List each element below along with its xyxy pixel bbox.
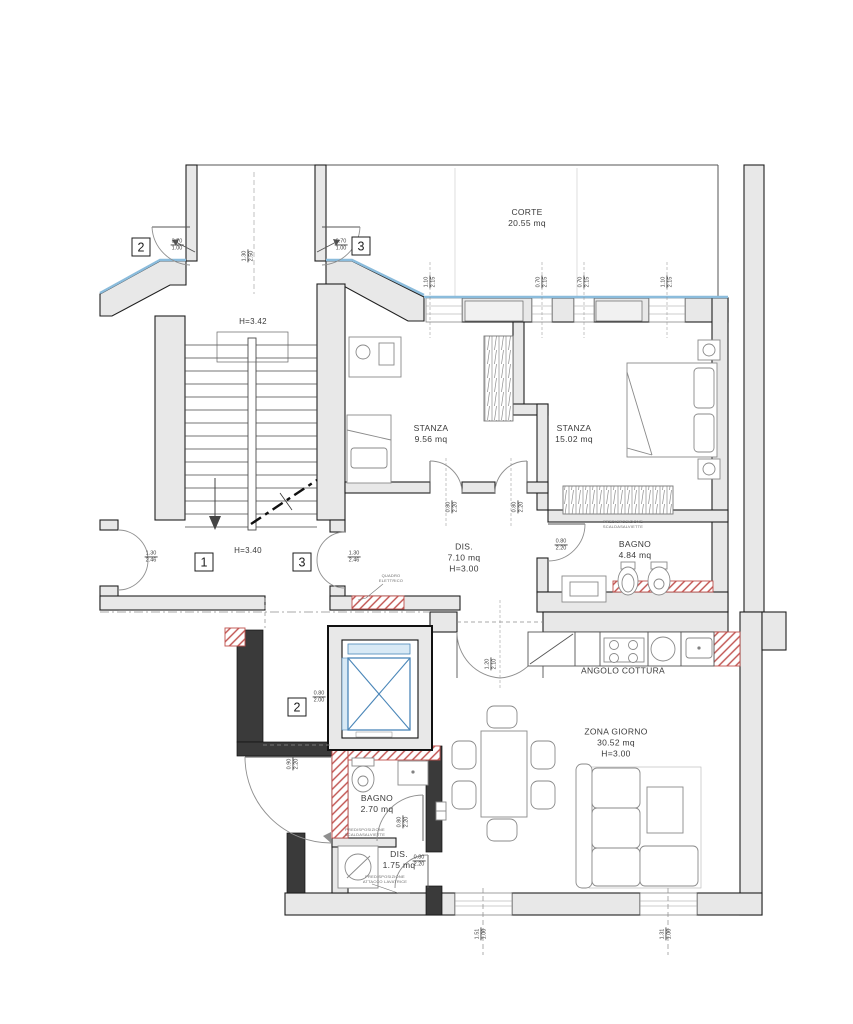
dim-height: 2.00: [313, 697, 326, 704]
dim-height: 2.15: [584, 276, 591, 289]
dim-height: 2.50: [248, 250, 255, 263]
dimension-landing-door-right: 1.302.46: [348, 550, 361, 563]
annotation-scaldasalviette-2: PREDISPOSIZIONE SCALDASALVIETTE: [345, 827, 385, 837]
dim-width: 1.10: [423, 276, 429, 289]
dim-width: 0.80: [396, 816, 402, 829]
dim-width: 0.80: [313, 690, 326, 696]
dim-width: 0.70: [335, 238, 348, 244]
section-marker-3-top: 3: [352, 237, 371, 256]
dim-height: 1.00: [171, 245, 184, 252]
dim-height: 2.20: [555, 545, 568, 552]
room-label-zona-giorno: ZONA GIORNO 30.52 mq H=3.00: [584, 726, 647, 759]
dimension-window-3: 0.702.15: [577, 276, 590, 289]
dim-width: 0.90: [286, 758, 292, 771]
dimension-bottom-window-left: 1.511.00: [474, 928, 487, 941]
dim-height: 2.20: [452, 501, 459, 514]
dim-width: 0.70: [577, 276, 583, 289]
dim-width: 1.30: [241, 250, 247, 263]
dim-height: 1.00: [481, 928, 488, 941]
dim-height: 2.15: [542, 276, 549, 289]
staircase: [185, 332, 317, 530]
dimension-stanza-2-door: 0.802.20: [511, 501, 524, 514]
dim-height: 2.20: [293, 758, 300, 771]
dim-width: 1.31: [659, 928, 665, 941]
dimension-dis-2-door: 0.802.20: [413, 854, 426, 867]
courtyard-outline: [186, 165, 718, 298]
dimension-landing-door-left: 1.302.46: [145, 550, 158, 563]
dimension-window-4: 1.102.15: [660, 276, 673, 289]
section-marker-1: 1: [195, 553, 214, 572]
room-label-angolo-cottura: ANGOLO COTTURA: [581, 665, 665, 676]
dim-height: 2.20: [518, 501, 525, 514]
dim-height: 2.20: [413, 861, 426, 868]
annotation-scaldasalviette-1: PREDISPOSIZIONE SCALDASALVIETTE: [603, 519, 643, 529]
dimension-terrace-door: 0.902.20: [286, 758, 299, 771]
dimension-bagno-1-door: 0.802.20: [555, 538, 568, 551]
dim-height: 2.20: [403, 816, 410, 829]
dim-height: 2.15: [667, 276, 674, 289]
dimension-door-3: 0.701.00: [335, 238, 348, 251]
dim-height: 2.46: [145, 557, 158, 564]
room-label-bagno-2: BAGNO 2.70 mq: [361, 793, 394, 815]
section-marker-2-top: 2: [132, 238, 151, 257]
dimension-bottom-window-right: 1.311.00: [659, 928, 672, 941]
room-label-stanza-2: STANZA 15.02 mq: [555, 423, 593, 445]
dim-width: 0.80: [413, 854, 426, 860]
dim-width: 1.30: [348, 550, 361, 556]
dim-width: 1.20: [484, 658, 490, 671]
dimension-elevator-door: 0.802.00: [313, 690, 326, 703]
glass-sill-lines: [100, 260, 728, 297]
dimension-window-1: 1.102.15: [423, 276, 436, 289]
dimension-entry-door: 1.202.10: [484, 658, 497, 671]
dimension-bagno-2-door: 0.802.20: [396, 816, 409, 829]
dim-width: 1.51: [474, 928, 480, 941]
stair-height-label: H=3.42: [239, 317, 267, 327]
room-label-bagno-1: BAGNO 4.84 mq: [619, 539, 652, 561]
dimension-door-2: 3.701.00: [171, 238, 184, 251]
dim-width: 1.10: [660, 276, 666, 289]
dim-height: 2.10: [491, 658, 498, 671]
dimension-entry-window: 1.302.50: [241, 250, 254, 263]
dim-width: 0.80: [511, 501, 517, 514]
dimension-window-2: 0.702.15: [535, 276, 548, 289]
annotation-lavatrice: PREDISPOSIZIONE ATTACCO LAVATRICE: [363, 874, 407, 884]
room-label-stanza-1: STANZA 9.56 mq: [414, 423, 449, 445]
floor-plan-canvas: CORTE 20.55 mq H=3.42 STANZA 9.56 mq STA…: [0, 0, 853, 1024]
dim-width: 0.80: [445, 501, 451, 514]
dim-height: 1.00: [335, 245, 348, 252]
dim-width: 1.30: [145, 550, 158, 556]
dim-width: 3.70: [171, 238, 184, 244]
section-marker-3-mid: 3: [293, 553, 312, 572]
dimension-stanza-1-door: 0.802.20: [445, 501, 458, 514]
room-label-corte: CORTE 20.55 mq: [508, 207, 546, 229]
dim-width: 0.70: [535, 276, 541, 289]
section-marker-2-mid: 2: [288, 698, 307, 717]
annotation-quadro-elettrico: QUADRO ELETTRICO: [379, 573, 403, 583]
elevator: [328, 626, 432, 750]
floor-plan-drawing: [0, 0, 853, 1024]
dim-height: 2.15: [430, 276, 437, 289]
dim-height: 1.00: [666, 928, 673, 941]
dim-width: 0.80: [555, 538, 568, 544]
landing-height-label: H=3.40: [234, 546, 262, 556]
dim-height: 2.46: [348, 557, 361, 564]
room-label-dis-1: DIS. 7.10 mq H=3.00: [448, 541, 481, 574]
room-label-dis-2: DIS. 1.75 mq: [383, 849, 416, 871]
